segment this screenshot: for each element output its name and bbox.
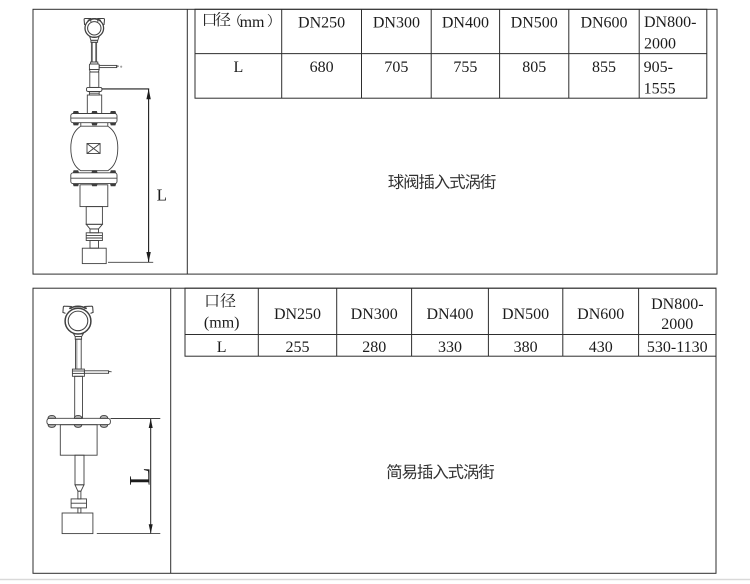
svg-text:DN800-: DN800- [644,14,696,31]
svg-text:680: 680 [310,59,334,76]
svg-text:755: 755 [453,59,477,76]
svg-text:DN500: DN500 [511,14,558,31]
svg-text:DN800-: DN800- [651,296,703,313]
svg-text:L: L [124,467,157,485]
svg-text:L: L [234,59,244,76]
svg-text:330: 330 [438,339,462,356]
svg-text:DN300: DN300 [351,306,398,323]
svg-text:255: 255 [286,339,310,356]
svg-text:DN400: DN400 [442,14,489,31]
svg-text:L: L [217,339,227,356]
svg-text:DN600: DN600 [577,306,624,323]
svg-text:805: 805 [522,59,546,76]
svg-text:DN250: DN250 [298,14,345,31]
svg-text:430: 430 [589,339,613,356]
svg-text:DN500: DN500 [502,306,549,323]
svg-text:280: 280 [362,339,386,356]
svg-text:DN400: DN400 [426,306,473,323]
svg-text:1555: 1555 [644,81,676,98]
svg-text:L: L [157,185,167,204]
svg-text:DN600: DN600 [580,14,627,31]
svg-text:2000: 2000 [661,316,693,333]
svg-text:2000: 2000 [644,35,676,52]
svg-text:DN250: DN250 [274,306,321,323]
svg-text:855: 855 [592,59,616,76]
svg-text:905-: 905- [644,59,673,76]
svg-text:DN300: DN300 [373,14,420,31]
svg-text:mm: mm [240,14,265,31]
svg-text:705: 705 [384,59,408,76]
svg-text:530-1130: 530-1130 [647,339,708,356]
svg-text:(mm): (mm) [204,315,240,332]
svg-text:380: 380 [514,339,538,356]
